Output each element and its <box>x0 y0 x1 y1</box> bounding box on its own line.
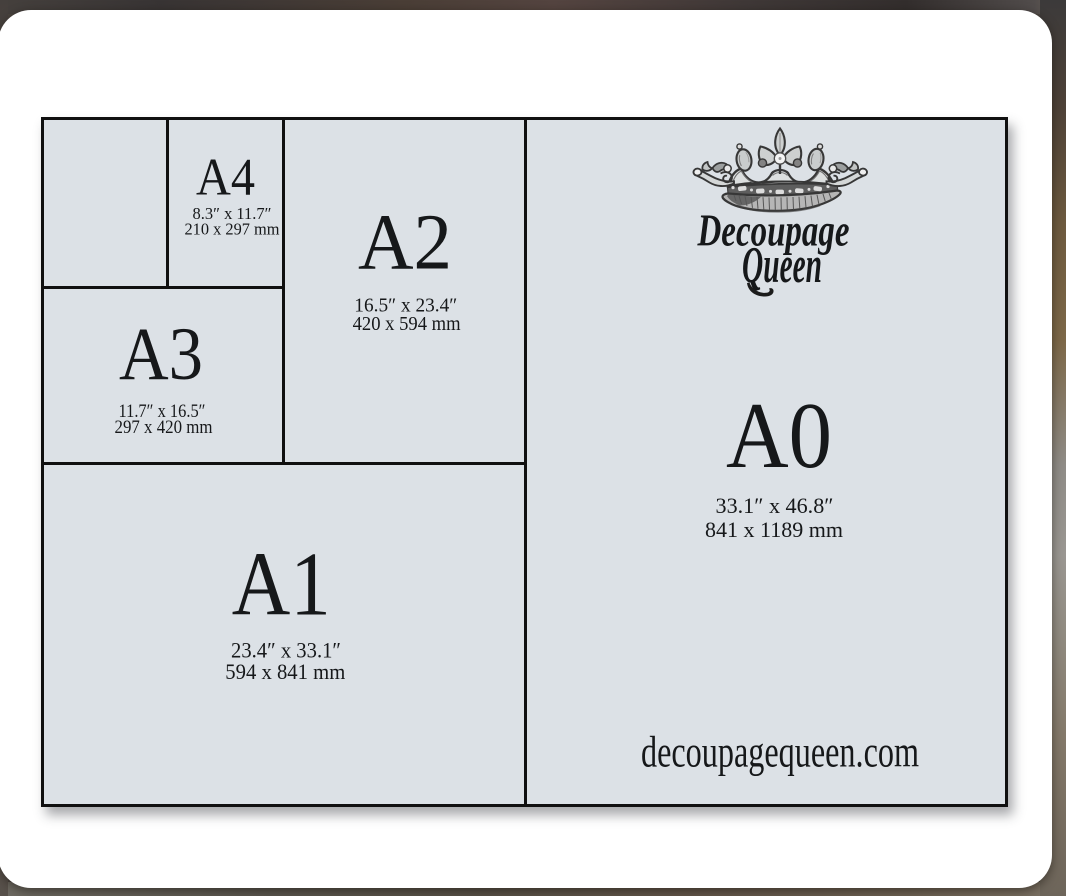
svg-text:Queen: Queen <box>742 237 822 294</box>
svg-text:210 x 297 mm: 210 x 297 mm <box>185 220 280 239</box>
svg-text:A3: A3 <box>119 313 203 396</box>
svg-text:33.1″ x 46.8″: 33.1″ x 46.8″ <box>716 493 834 518</box>
svg-text:decoupagequeen.com: decoupagequeen.com <box>641 728 919 777</box>
svg-text:A0: A0 <box>726 384 832 488</box>
svg-text:A2: A2 <box>358 200 452 287</box>
svg-text:A1: A1 <box>232 534 331 635</box>
svg-text:420 x 594 mm: 420 x 594 mm <box>353 314 461 335</box>
svg-text:594 x 841 mm: 594 x 841 mm <box>225 659 345 684</box>
svg-text:297 x 420 mm: 297 x 420 mm <box>115 417 213 438</box>
svg-text:A4: A4 <box>196 149 255 207</box>
svg-text:841 x 1189 mm: 841 x 1189 mm <box>705 517 843 542</box>
